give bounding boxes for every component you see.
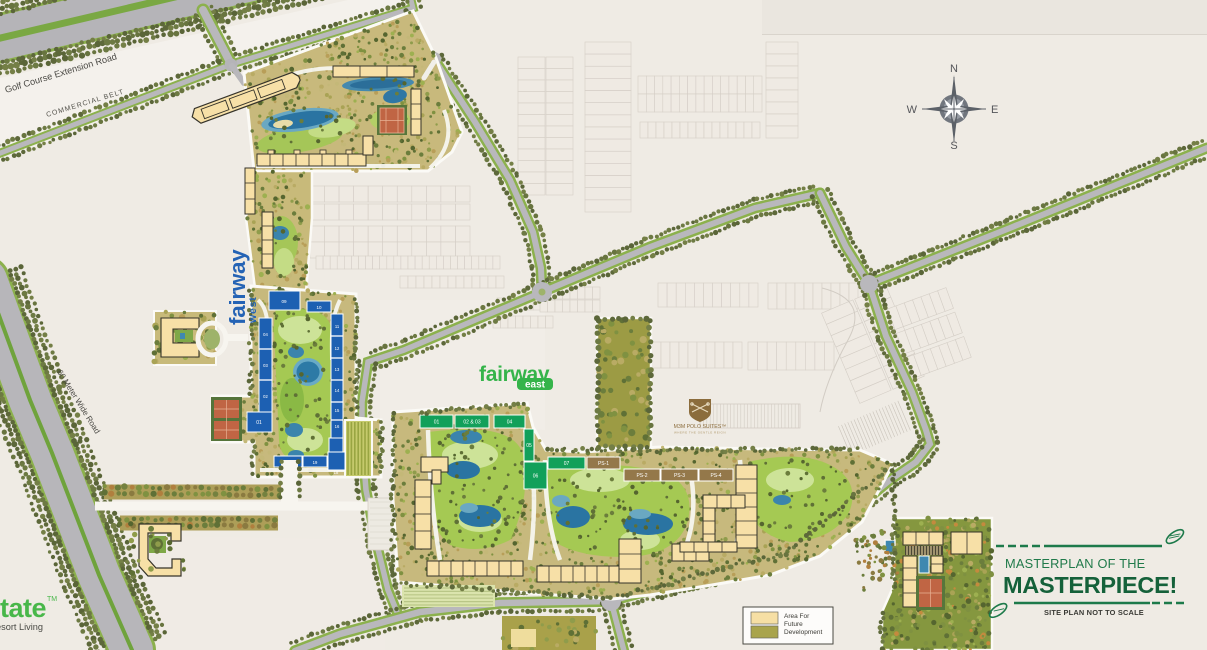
svg-text:19: 19 — [313, 460, 318, 465]
svg-text:04: 04 — [263, 332, 268, 337]
svg-text:02: 02 — [263, 394, 268, 399]
svg-text:18: 18 — [334, 470, 339, 475]
svg-text:13: 13 — [335, 367, 340, 372]
svg-text:10: 10 — [316, 305, 322, 310]
svg-text:09: 09 — [281, 299, 287, 304]
svg-text:12: 12 — [335, 346, 340, 351]
svg-text:01: 01 — [256, 420, 262, 426]
svg-text:03: 03 — [263, 363, 268, 368]
svg-text:11: 11 — [335, 324, 340, 329]
svg-text:15: 15 — [335, 408, 340, 413]
svg-text:16: 16 — [335, 424, 340, 429]
svg-text:14: 14 — [335, 388, 340, 393]
